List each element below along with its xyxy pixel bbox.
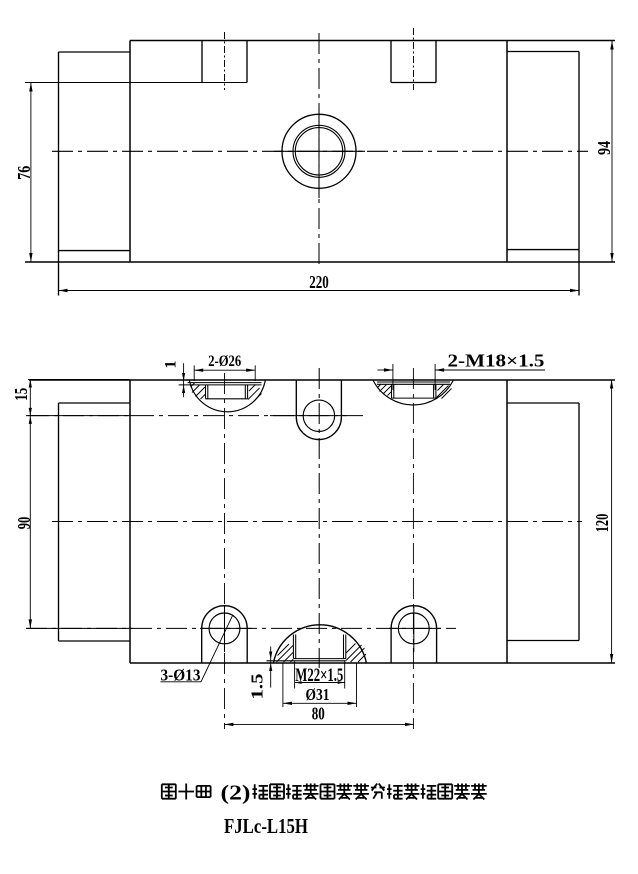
svg-text:Ø31: Ø31: [306, 685, 330, 704]
svg-text:(2): (2): [221, 781, 251, 805]
svg-text:94: 94: [594, 141, 614, 155]
svg-text:1.5: 1.5: [248, 674, 267, 700]
svg-text:80: 80: [312, 704, 325, 724]
svg-text:2-M18×1.5: 2-M18×1.5: [448, 351, 545, 371]
svg-text:15: 15: [11, 388, 31, 401]
svg-text:2-Ø26: 2-Ø26: [208, 353, 241, 370]
svg-text:1: 1: [163, 361, 180, 369]
svg-text:90: 90: [14, 517, 34, 530]
svg-text:76: 76: [14, 166, 34, 180]
svg-text:M22×1.5: M22×1.5: [295, 665, 343, 686]
svg-text:120: 120: [592, 514, 612, 533]
svg-text:220: 220: [309, 272, 329, 292]
svg-text:FJLc-L15H: FJLc-L15H: [224, 814, 308, 838]
